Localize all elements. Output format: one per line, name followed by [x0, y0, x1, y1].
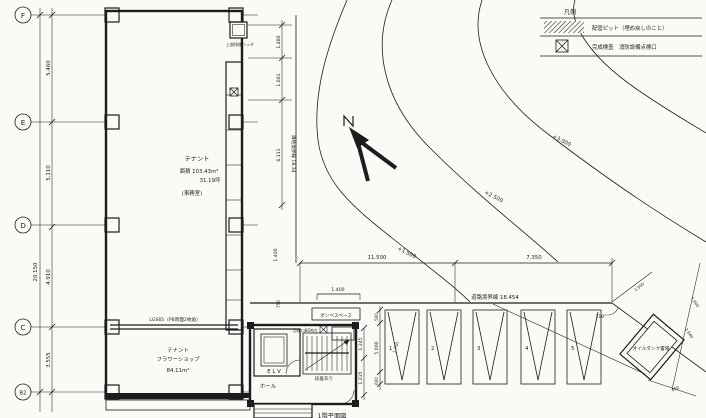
- legend-title: 凡例: [564, 8, 576, 16]
- entrance-porch: [254, 404, 312, 418]
- legend: 凡例 配管ピット（埋め戻しのこと） 完成検査 消防設備点検口: [540, 8, 702, 56]
- inspection-box-icon: [230, 88, 238, 96]
- parking-area: 1 2 3 4 5 500 5.000 600 1.750: [374, 306, 601, 390]
- parking-dim-bottom: 600: [374, 377, 379, 385]
- left-dimension-chains: 20.150 5.460 5.110 4.910 3.555: [33, 8, 55, 412]
- inspection-note: 点検口BOX内: [293, 327, 317, 333]
- legend-row1-label: 配管ピット（埋め戻しのこと）: [592, 24, 667, 32]
- bottom-wall-band: [106, 393, 250, 398]
- contour-label-2500: +2.500: [483, 190, 504, 205]
- right-boundary: 1.480 1.661 6.111 隣地境界線 18.34: [248, 15, 297, 263]
- roof-hatch: 上部排煙ハッチ: [226, 22, 254, 47]
- oil-tank-label: オイルタンク置場: [633, 345, 670, 352]
- tenant-upper-area: 面積 103.43m²: [180, 167, 219, 175]
- oil-tank-area: オイルタンク置場 1.500 1.600 2.640 850: [612, 263, 701, 396]
- building: 上部排煙ハッチ テナント 面積 103.43m² 31.19坪 (事務室): [105, 8, 254, 410]
- site-dim-small2: 1.400: [273, 248, 279, 261]
- grid-bubble-b2: B2: [19, 391, 26, 397]
- site-plan-drawing: 20.150 5.460 5.110 4.910 3.555 F E D C B…: [0, 0, 706, 418]
- stall-2: 2: [431, 346, 434, 352]
- oil-dim-1: 1.500: [633, 281, 645, 292]
- parking-dim-depth: 5.000: [374, 341, 380, 354]
- parking-dim-top: 500: [374, 313, 379, 321]
- grid-bubble-c: C: [20, 323, 25, 332]
- parking-dim-width: 1.750: [391, 341, 399, 354]
- dim-left-c-b2: 3.555: [46, 352, 52, 367]
- contour-label-3000: +3.000: [551, 134, 572, 149]
- partition-label: LGS65（PB両面2枚貼）: [149, 316, 200, 323]
- elevator-label: E L V: [267, 369, 281, 375]
- tenant-lower-name: テナント: [167, 347, 189, 354]
- angle-arc: [607, 308, 618, 315]
- hall-label: ホール: [260, 383, 277, 390]
- inspection-note-group: 点検口BOX内: [293, 326, 327, 333]
- site-dim-w2: 7.350: [526, 255, 542, 261]
- grid-bubble-e: E: [21, 118, 26, 127]
- grid-bubble-f: F: [21, 11, 25, 20]
- north-n-glyph: [344, 116, 353, 126]
- grid-bubbles: F E D C B2: [15, 7, 31, 400]
- site-dim-small: 1.400: [331, 287, 344, 293]
- roof-hatch-label: 上部排煙ハッチ: [226, 41, 254, 47]
- contour-label-1500: +1.500: [396, 246, 417, 261]
- road-boundary-label: 道路境界線 18.454: [471, 293, 519, 301]
- right-dim-1: 1.480: [276, 35, 282, 48]
- dim-left-e-d: 5.110: [46, 165, 52, 181]
- core: E L V ホール 段差あり 点検口BOX内 ボ: [247, 308, 367, 418]
- north-arrow-icon: [344, 116, 396, 181]
- tenant-upper-use: (事務室): [182, 189, 202, 197]
- grid-bubble-d: D: [20, 221, 26, 230]
- tenant-lower-area: 84.11m²: [167, 367, 190, 374]
- building-outline: [106, 11, 242, 398]
- stall-4: 4: [525, 346, 529, 352]
- parking-dims: 500 5.000 600 1.750: [374, 306, 400, 390]
- stall-3: 3: [477, 346, 480, 352]
- floor-plan-sheet: 20.150 5.460 5.110 4.910 3.555 F E D C B…: [0, 0, 706, 418]
- boundary-label-right: 隣地境界線 18.34: [290, 135, 297, 173]
- right-dim-3: 6.111: [276, 148, 282, 161]
- bottom-pit-band: [106, 400, 250, 410]
- legend-hatch-swatch: [544, 21, 584, 33]
- core-dim1: 1.345: [358, 337, 364, 350]
- legend-row2-label: 完成検査 消防設備点検口: [592, 43, 657, 51]
- site-dim-small3: 750: [276, 300, 281, 308]
- legend-boxx-icon: [556, 40, 568, 52]
- core-dims: 1.345 1.235: [358, 325, 367, 400]
- tenant-upper-tsubo: 31.19坪: [200, 176, 221, 184]
- oil-dim-3: 2.640: [684, 327, 695, 340]
- oil-dim-4: 850: [671, 385, 680, 393]
- bombe-label: ボンベスペース: [320, 312, 352, 319]
- sheet-title-partial: 1階平面図: [318, 412, 347, 418]
- stall-5: 5: [571, 346, 574, 352]
- dim-left-total: 20.150: [33, 262, 39, 281]
- site-dim-w1: 11.500: [368, 255, 387, 261]
- right-dim-2: 1.661: [276, 73, 282, 86]
- stair-note: 段差あり: [315, 375, 333, 382]
- tenant-lower-shop: フラワーショップ: [156, 356, 200, 363]
- core-dim2: 1.235: [358, 371, 364, 384]
- dim-left-f-e: 5.460: [46, 60, 52, 76]
- tenant-upper-name: テナント: [185, 156, 210, 163]
- dim-left-d-c: 4.910: [46, 269, 52, 285]
